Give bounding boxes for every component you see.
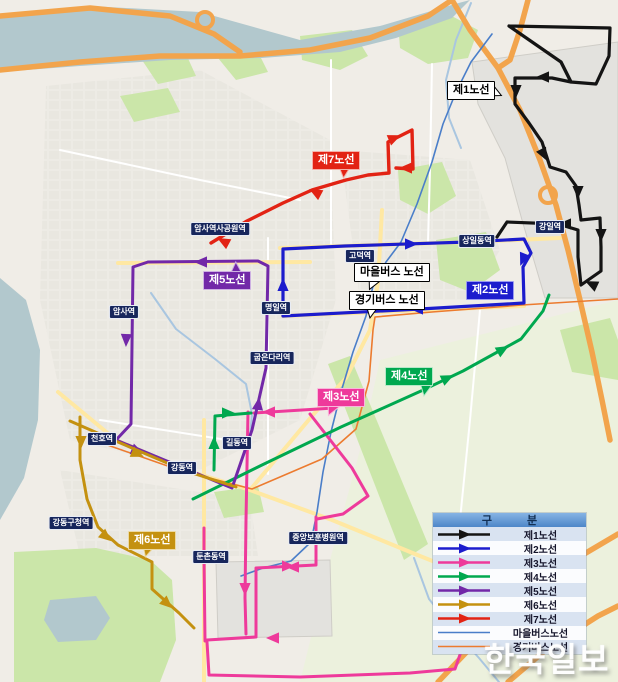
route6-label: 제6노선: [128, 531, 176, 550]
station-badge: 굽은다리역: [250, 351, 295, 365]
station-badge: 고덕역: [345, 249, 375, 263]
legend-line-sample: [433, 542, 495, 555]
legend-row-label: 제3노선: [495, 555, 586, 570]
legend-row-label: 제1노선: [495, 527, 586, 542]
watermark: 한국일보: [484, 633, 609, 681]
station-badge: 암사역: [109, 305, 139, 319]
legend-row: 제2노선: [433, 541, 586, 555]
station-badge: 명일역: [261, 301, 291, 315]
station-badge: 천호역: [87, 432, 117, 446]
station-badge: 둔촌동역: [192, 550, 229, 564]
legend-line-sample: [433, 612, 495, 625]
development-zone: [216, 560, 332, 638]
station-badge: 상일동역: [458, 234, 495, 248]
legend-row: 제3노선: [433, 555, 586, 569]
legend-row: 제4노선: [433, 569, 586, 583]
legend-header: 구 분: [433, 513, 586, 527]
legend-row: 제5노선: [433, 583, 586, 597]
legend-row-label: 제5노선: [495, 583, 586, 598]
route5-label: 제5노선: [203, 271, 251, 290]
route3-label: 제3노선: [317, 388, 365, 407]
legend-row-label: 제6노선: [495, 597, 586, 612]
route4-label: 제4노선: [385, 367, 433, 386]
legend-line-sample: [433, 556, 495, 569]
station-badge: 길동역: [222, 436, 252, 450]
legend-row: 제1노선: [433, 527, 586, 541]
station-badge: 강동역: [167, 461, 197, 475]
station-badge: 강일역: [535, 220, 565, 234]
route7-label: 제7노선: [312, 151, 360, 170]
legend-row-label: 제2노선: [495, 541, 586, 556]
station-badge: 암사역사공원역: [190, 222, 250, 236]
legend-line-sample: [433, 528, 495, 541]
legend-row-label: 제7노선: [495, 611, 586, 626]
station-badge: 중앙보훈병원역: [288, 531, 348, 545]
legend-line-sample: [433, 584, 495, 597]
legend-row: 제6노선: [433, 597, 586, 611]
route1-label: 제1노선: [447, 81, 495, 100]
legend-row-label: 제4노선: [495, 569, 586, 584]
legend-line-sample: [433, 570, 495, 583]
route2-label: 제2노선: [466, 281, 514, 300]
news-map-graphic: 구 분 제1노선제2노선제3노선제4노선제5노선제6노선제7노선마을버스노선경기…: [0, 0, 618, 682]
gyeonggi-bus-label: 경기버스 노선: [349, 291, 425, 310]
legend-row: 제7노선: [433, 612, 586, 626]
station-badge: 강동구청역: [49, 516, 94, 530]
legend-line-sample: [433, 598, 495, 611]
village-bus-label: 마을버스 노선: [354, 263, 430, 282]
